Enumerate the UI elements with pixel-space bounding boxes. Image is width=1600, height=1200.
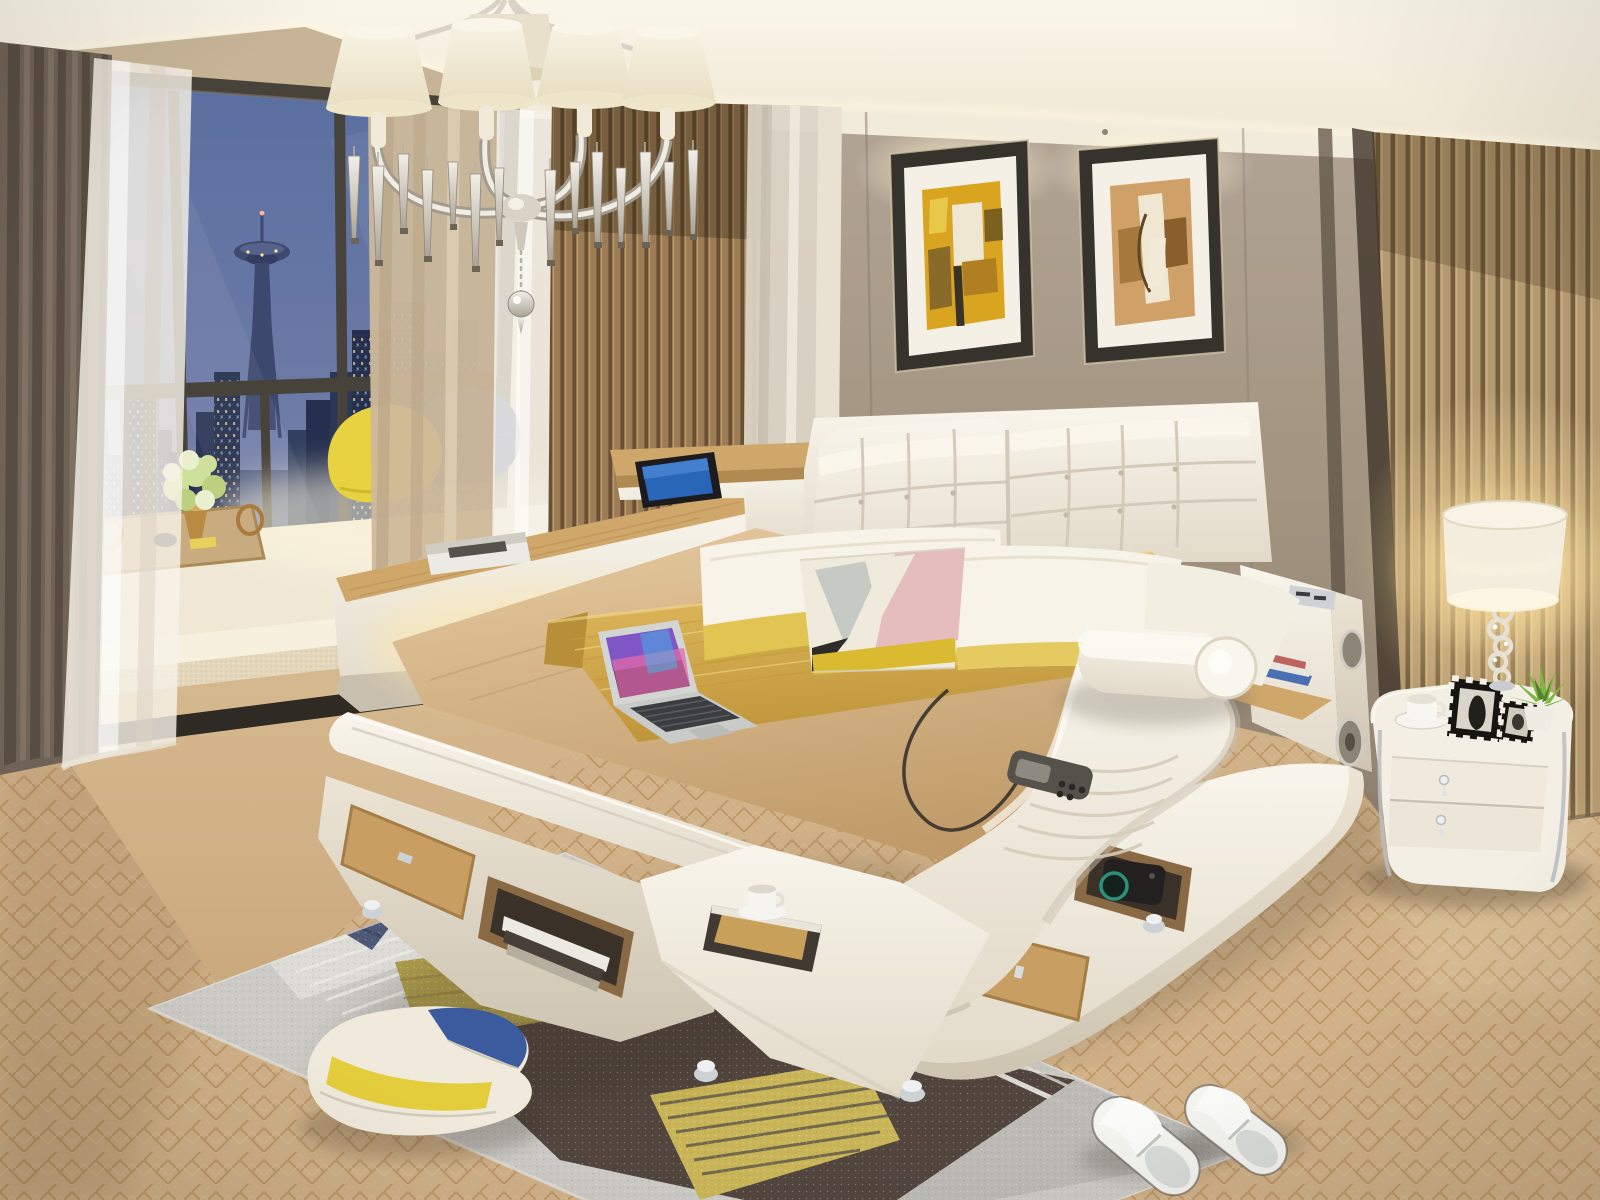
bedroom-scene bbox=[0, 0, 1600, 1200]
vignette bbox=[0, 0, 1600, 1200]
bedroom-photo bbox=[0, 0, 1600, 1200]
